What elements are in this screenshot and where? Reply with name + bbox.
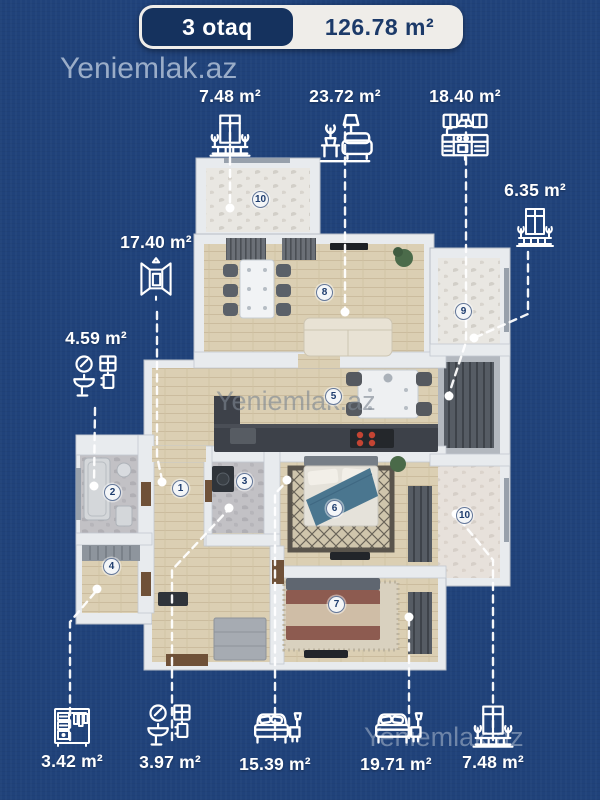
doormat bbox=[304, 650, 348, 658]
area-value: 15.39 m² bbox=[239, 754, 311, 775]
area-label-bedroom-1: 15.39 m² bbox=[228, 697, 322, 775]
area-label-kitchen: 18.40 m² bbox=[418, 86, 512, 162]
washbasin-icon bbox=[144, 699, 196, 751]
radiator bbox=[408, 592, 432, 654]
wardrobe-icon bbox=[48, 702, 96, 750]
area-value: 17.40 m² bbox=[120, 232, 192, 253]
room-number-marker: 4 bbox=[103, 558, 120, 575]
room-number-marker: 8 bbox=[316, 284, 333, 301]
area-label-storage: 3.42 m² bbox=[25, 702, 119, 772]
area-value: 18.40 m² bbox=[429, 86, 501, 107]
radiator bbox=[408, 486, 432, 562]
room-number-marker: 10 bbox=[252, 191, 269, 208]
listing-image: Yeniemlak.az Yeniemlak.az Yeniemlak.az 3… bbox=[0, 0, 600, 800]
watermark: Yeniemlak.az bbox=[216, 386, 376, 417]
area-label-hallway: 17.40 m² bbox=[109, 232, 203, 304]
area-value: 4.59 m² bbox=[65, 328, 127, 349]
area-label-balcony-bottom: 7.48 m² bbox=[446, 699, 540, 773]
area-value: 6.35 m² bbox=[504, 180, 566, 201]
area-label-balcony-top: 7.48 m² bbox=[183, 86, 277, 160]
area-value: 3.97 m² bbox=[139, 752, 201, 773]
area-label-balcony-right: 6.35 m² bbox=[488, 180, 582, 250]
area-label-bathroom-2: 3.97 m² bbox=[123, 699, 217, 773]
room-number-marker: 9 bbox=[455, 303, 472, 320]
radiator bbox=[444, 362, 494, 448]
curtain bbox=[226, 238, 266, 260]
hallway-opening bbox=[152, 446, 206, 462]
area-label-bedroom-2: 19.71 m² bbox=[349, 697, 443, 775]
room-number-marker: 5 bbox=[325, 388, 342, 405]
headboard bbox=[304, 456, 378, 466]
room-number-marker: 1 bbox=[172, 480, 189, 497]
rooms-badge-label: 3 otaq bbox=[182, 14, 253, 41]
balcony-icon bbox=[511, 202, 559, 250]
bed-icon bbox=[368, 697, 424, 753]
area-value: 23.72 m² bbox=[309, 86, 381, 107]
room-number-marker: 3 bbox=[236, 473, 253, 490]
room-number-marker: 2 bbox=[104, 484, 121, 501]
area-value: 3.42 m² bbox=[41, 751, 103, 772]
area-value: 7.48 m² bbox=[199, 86, 261, 107]
dresser bbox=[214, 618, 266, 660]
watermark: Yeniemlak.az bbox=[60, 52, 237, 86]
plant bbox=[390, 456, 406, 472]
balcony-icon bbox=[204, 108, 256, 160]
doormat bbox=[330, 552, 370, 560]
total-area-badge: 126.78 m² bbox=[296, 5, 463, 49]
tv bbox=[330, 243, 368, 250]
headboard bbox=[286, 578, 380, 590]
area-value: 19.71 m² bbox=[360, 754, 432, 775]
sofa-icon bbox=[316, 108, 374, 166]
room-number-marker: 10 bbox=[456, 507, 473, 524]
kitchen-icon bbox=[438, 108, 492, 162]
room-number-marker: 6 bbox=[326, 500, 343, 517]
balcony-icon bbox=[467, 699, 519, 751]
total-area-label: 126.78 m² bbox=[325, 14, 434, 41]
area-value: 7.48 m² bbox=[462, 752, 524, 773]
bathroom-2-fixtures bbox=[212, 466, 234, 492]
dining-table bbox=[240, 260, 274, 318]
washbasin-icon bbox=[70, 350, 122, 402]
area-label-living-room: 23.72 m² bbox=[298, 86, 392, 166]
sink bbox=[117, 463, 131, 477]
summary-badge: 3 otaq 126.78 m² bbox=[139, 5, 463, 49]
curtain bbox=[282, 238, 316, 260]
toilet bbox=[116, 506, 132, 526]
bed-icon bbox=[247, 697, 303, 753]
hallway-icon bbox=[131, 254, 181, 304]
room-number-marker: 7 bbox=[328, 596, 345, 613]
rooms-badge: 3 otaq bbox=[142, 8, 293, 46]
sink bbox=[230, 428, 256, 444]
area-label-bathroom-1: 4.59 m² bbox=[49, 328, 143, 402]
